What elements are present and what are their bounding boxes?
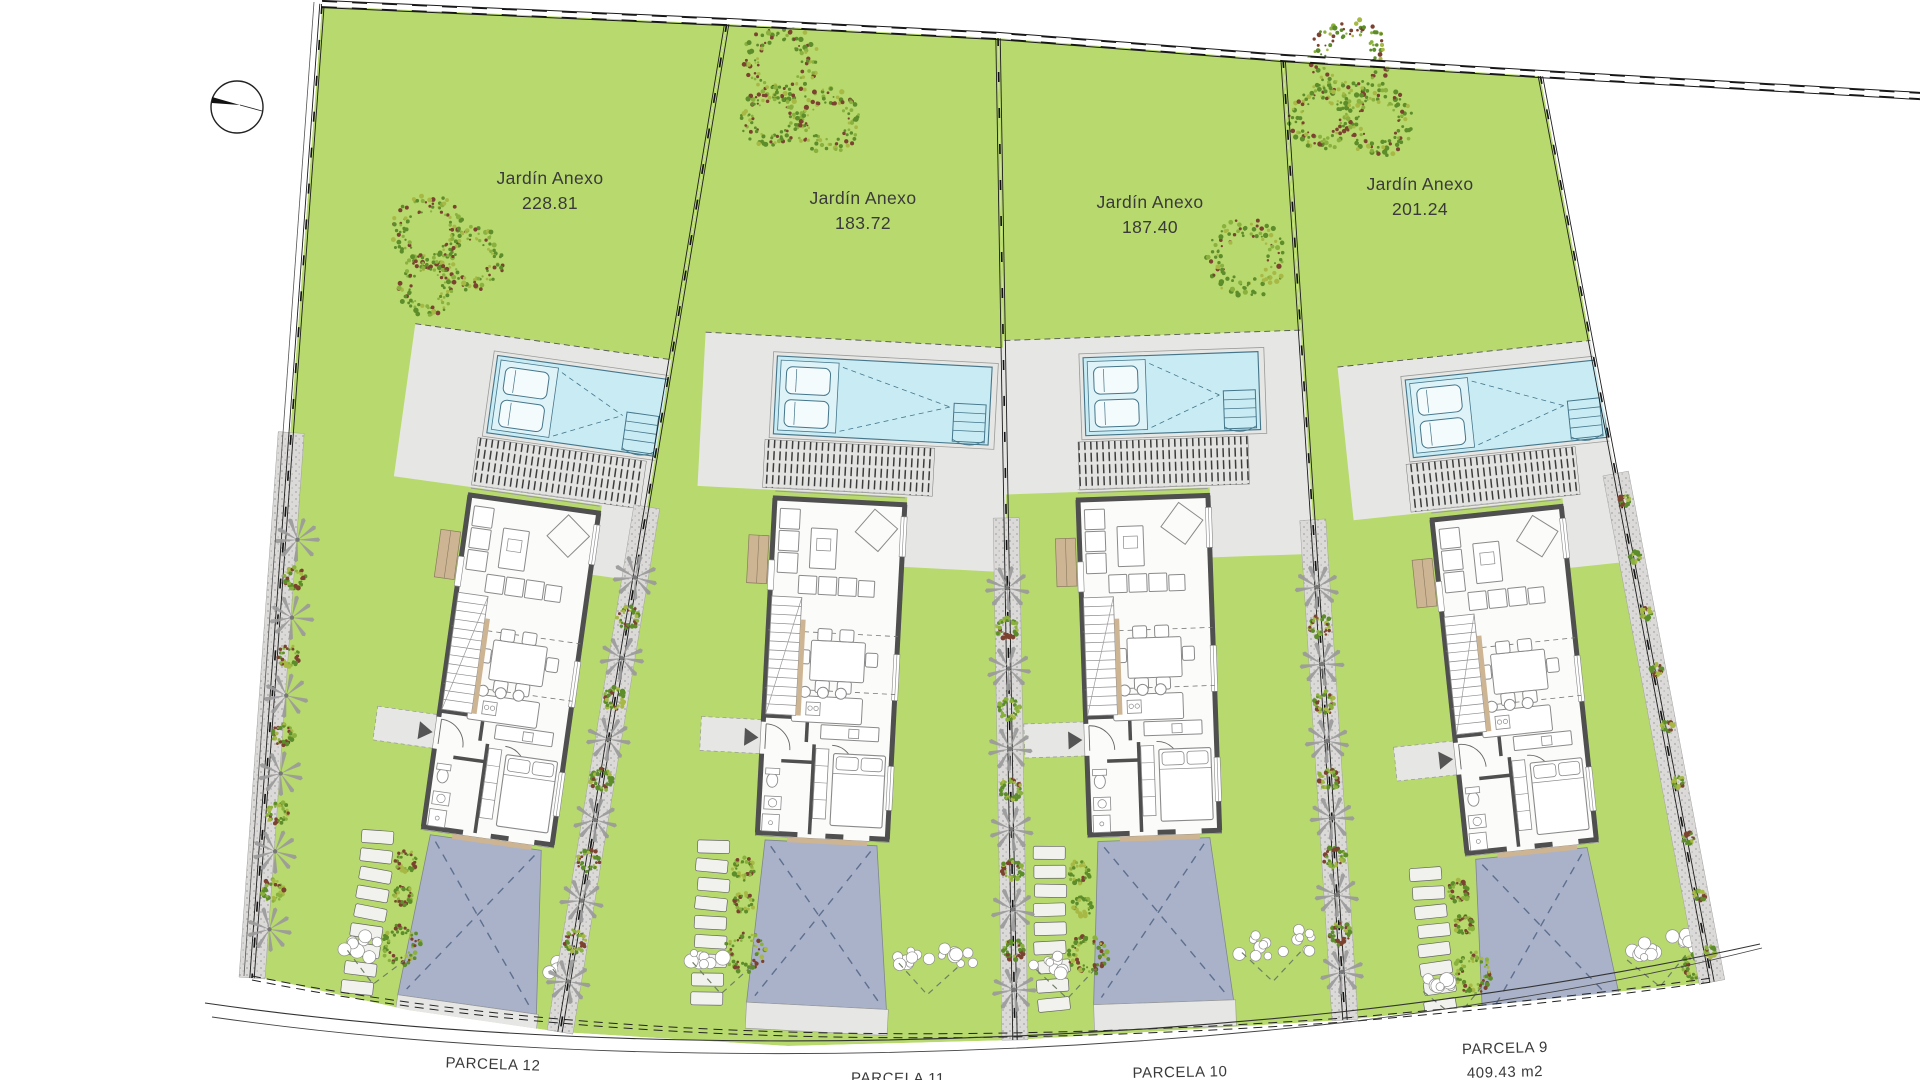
bed — [1159, 748, 1213, 822]
driveway — [745, 839, 897, 1035]
staircase — [766, 596, 807, 716]
pool — [1079, 347, 1267, 439]
bed — [830, 753, 886, 828]
parcel-label-11: PARCELA 11 — [788, 1069, 1008, 1080]
parcel-label-10: PARCELA 10 — [1070, 1062, 1290, 1080]
garden-label-parcel-9: Jardín Anexo201.24 — [1300, 172, 1540, 222]
bed — [496, 755, 558, 834]
driveway — [1088, 837, 1237, 1031]
pool — [769, 352, 998, 450]
site-plan-page: Jardín Anexo228.81 Jardín Anexo183.72 Ja… — [0, 0, 1920, 1080]
site-plan-drawing — [0, 0, 1920, 1080]
garden-label-parcel-12: Jardín Anexo228.81 — [430, 166, 670, 216]
garden-label-parcel-10: Jardín Anexo187.40 — [1030, 190, 1270, 240]
bed — [1530, 758, 1589, 835]
garden-label-parcel-11: Jardín Anexo183.72 — [743, 186, 983, 236]
north-arrow-icon — [211, 81, 263, 133]
